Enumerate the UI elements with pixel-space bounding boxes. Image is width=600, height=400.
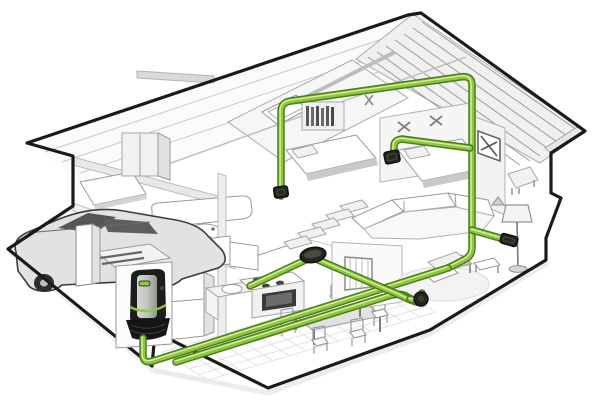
living-room-floor-elbow [414,292,428,306]
house-cutaway-illustration [0,0,600,400]
garage-pillar [76,224,100,286]
illustration-canvas [0,0,600,400]
bedroom-right-wall-inlet [383,150,400,165]
bedroom-left-wall-inlet [273,186,288,199]
upper-cabinet [230,242,258,270]
unit-port [160,286,164,290]
unit-power-led [139,281,150,286]
kitchen-sink [222,285,242,294]
lamp-shade [502,205,532,222]
